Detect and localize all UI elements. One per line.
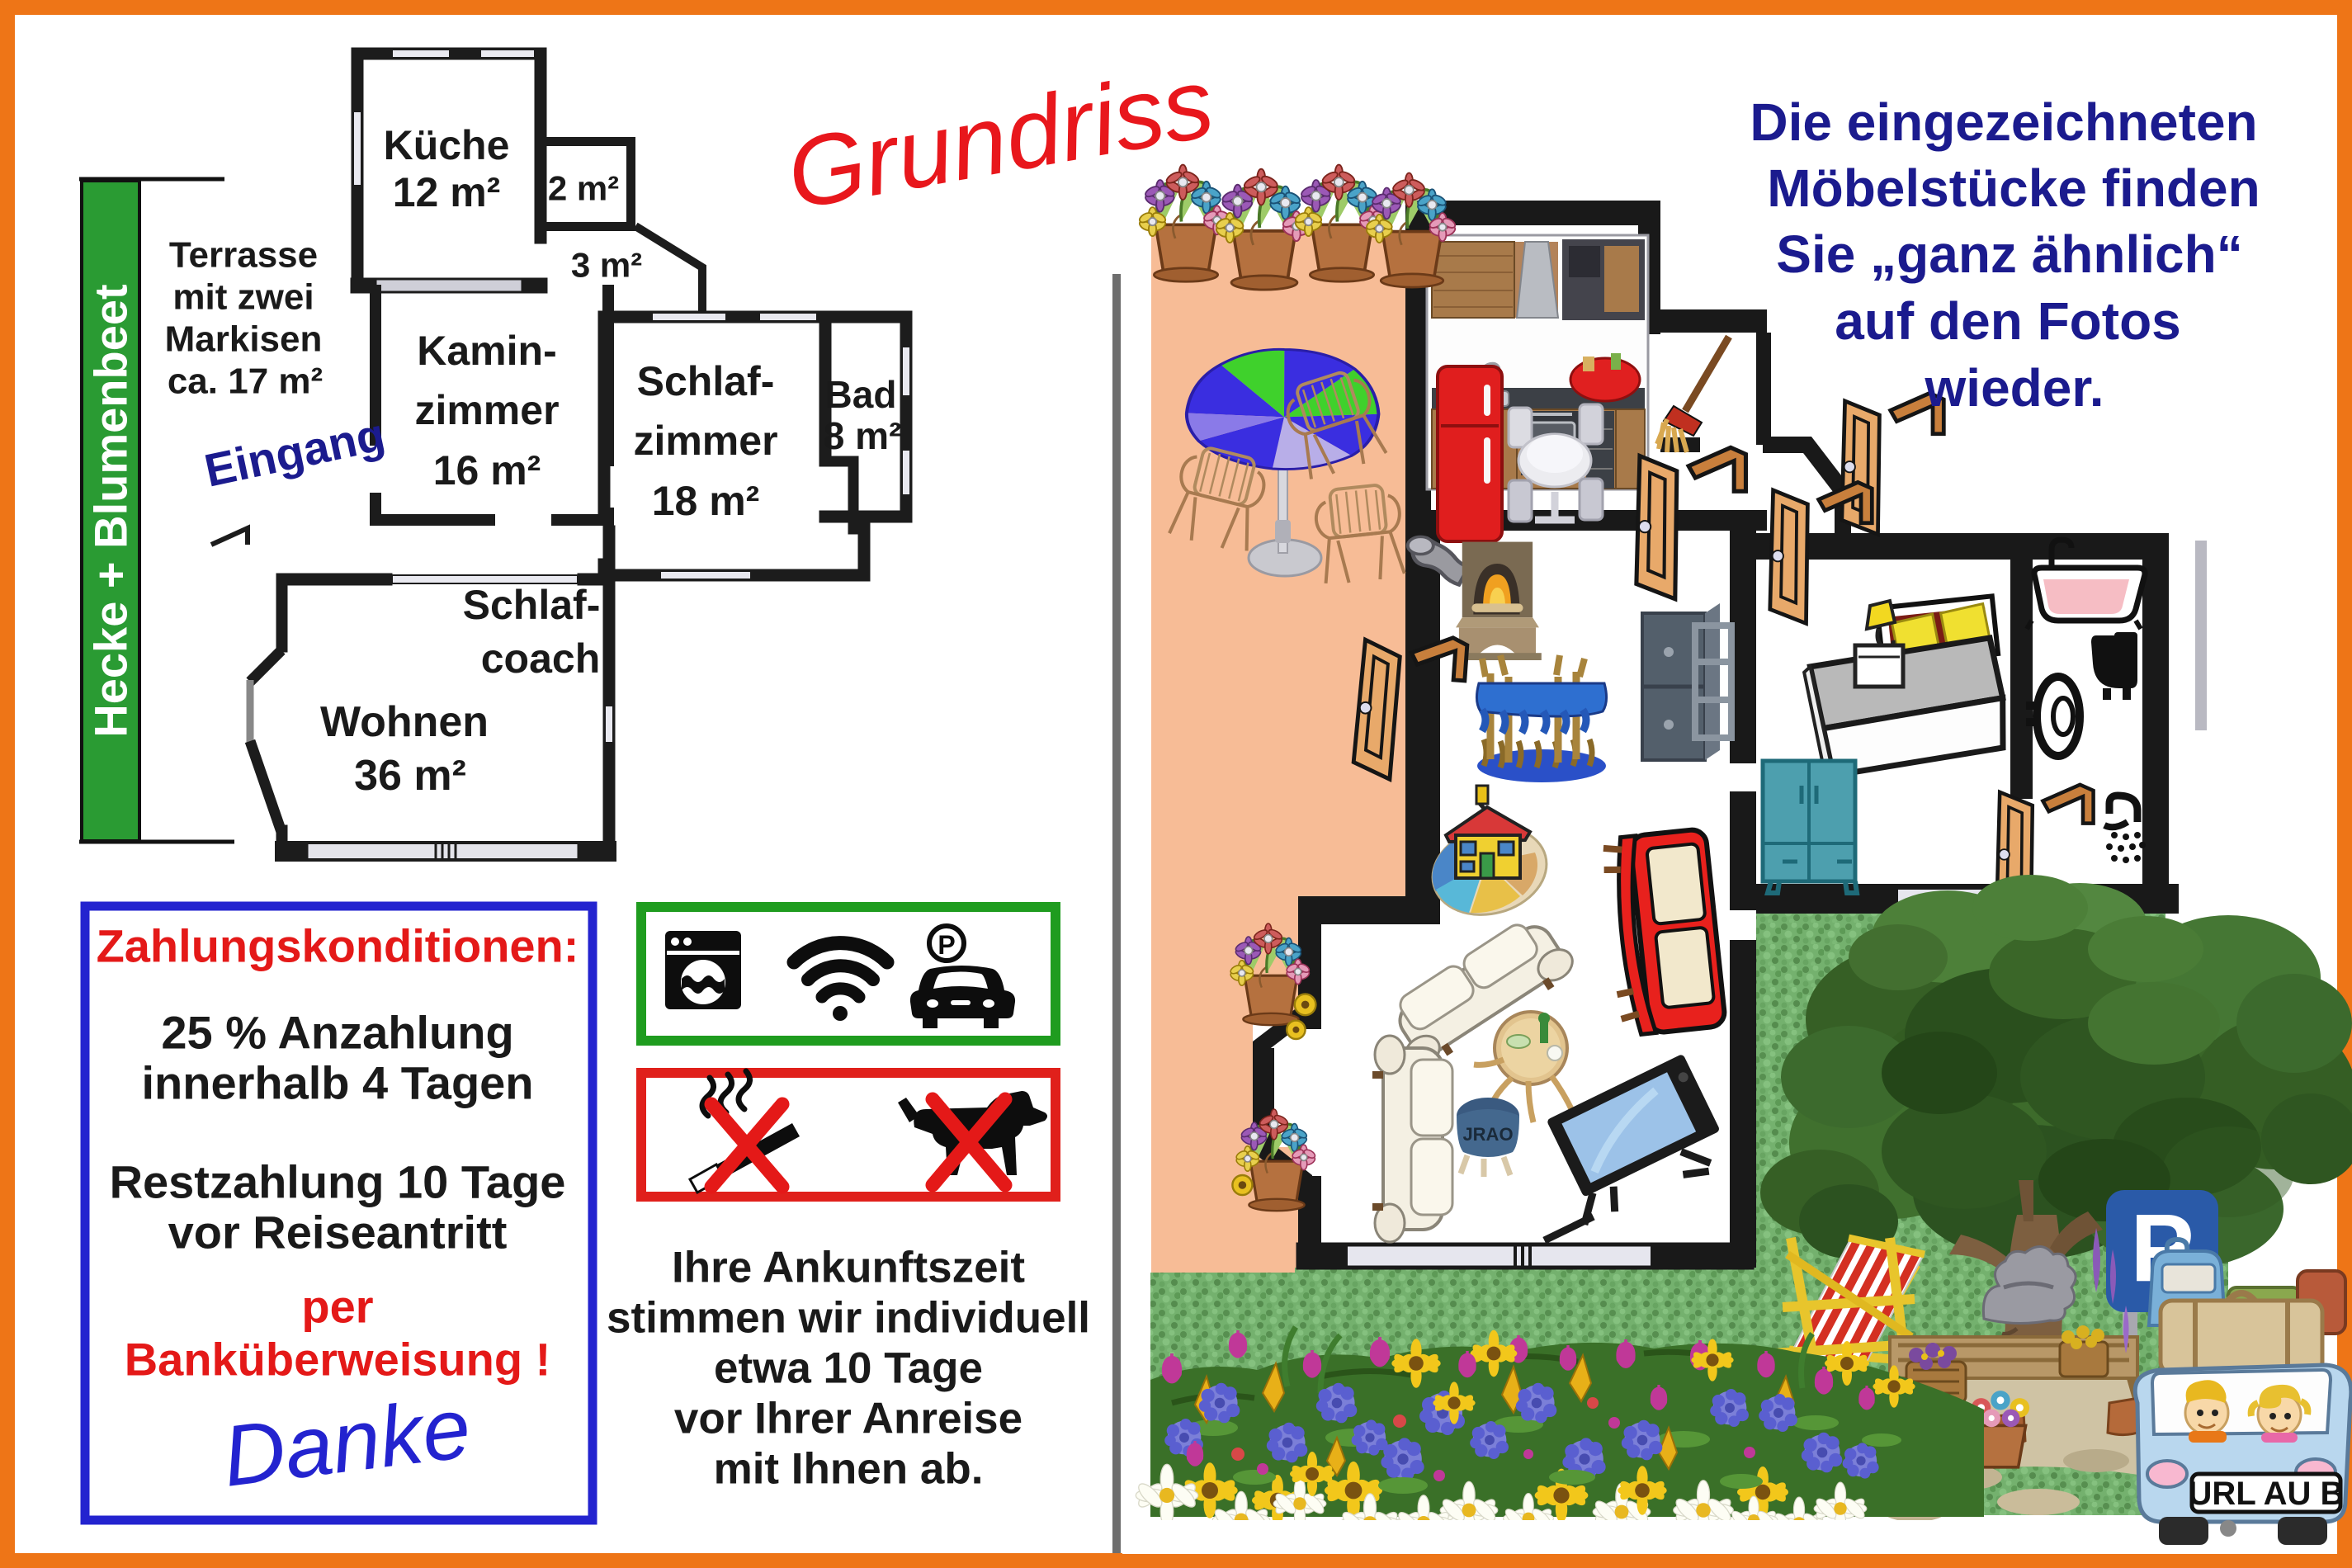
svg-text:Sie „ganz ähnlich“: Sie „ganz ähnlich“	[1776, 224, 2242, 284]
svg-text:auf den Fotos: auf den Fotos	[1835, 291, 2181, 351]
svg-text:Möbelstücke finden: Möbelstücke finden	[1767, 158, 2260, 218]
svg-text:Die eingezeichneten: Die eingezeichneten	[1750, 92, 2257, 152]
svg-text:wieder.: wieder.	[1925, 358, 2104, 418]
